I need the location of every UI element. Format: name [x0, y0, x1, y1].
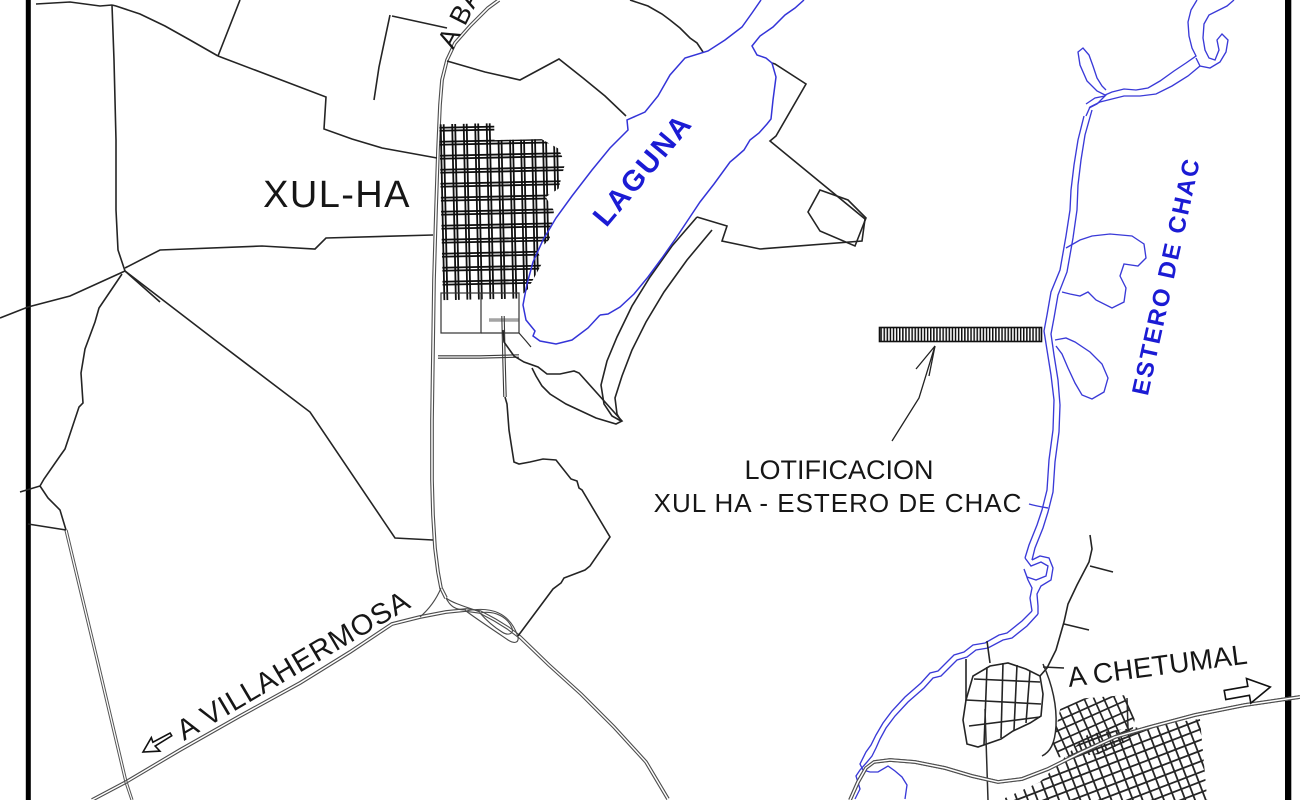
svg-text:LOTIFICACION: LOTIFICACION: [744, 455, 933, 485]
svg-text:XUL-HA: XUL-HA: [263, 174, 411, 216]
svg-text:XUL HA - ESTERO DE CHAC: XUL HA - ESTERO DE CHAC: [654, 488, 1023, 518]
